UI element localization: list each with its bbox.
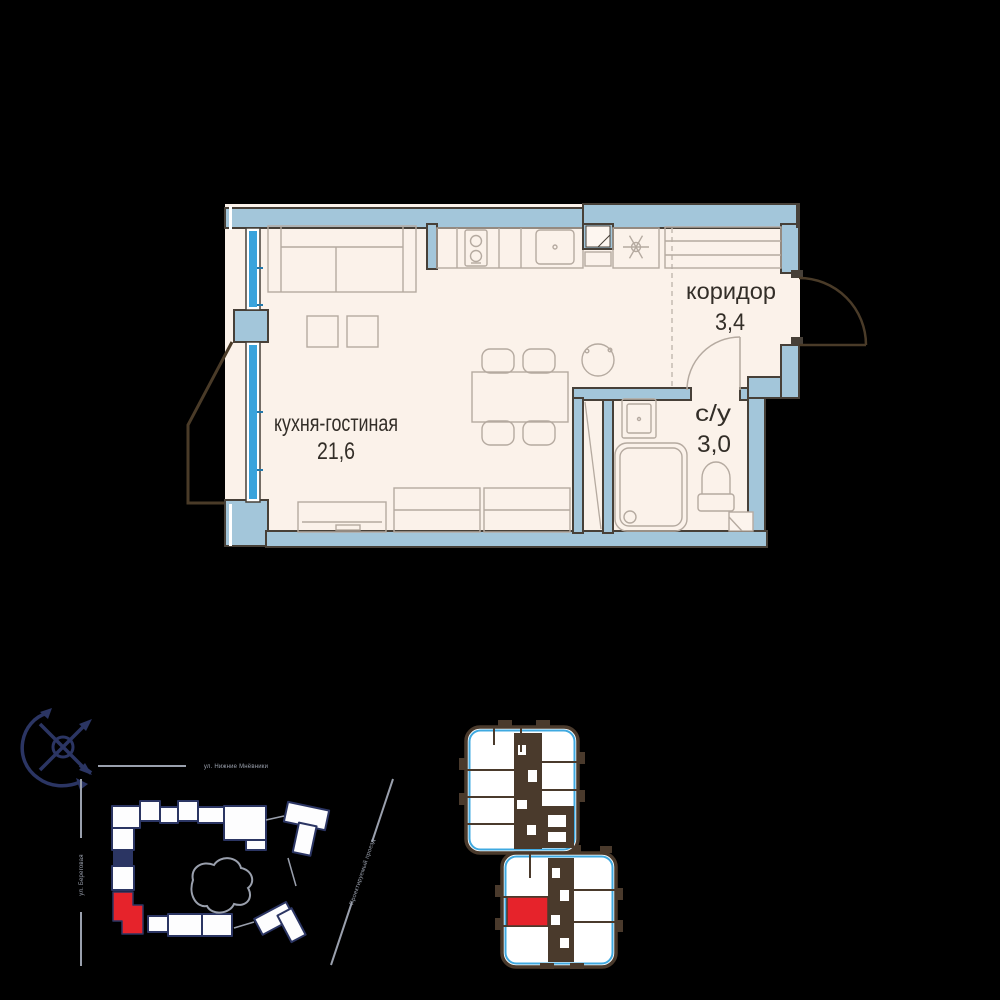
room-area-corridor: 3,4 bbox=[715, 309, 745, 336]
site-plan: ул. Нижние Мнёвники ул. Береговая Проект… bbox=[22, 708, 393, 966]
room-label-corridor: коридор bbox=[686, 278, 776, 304]
compass-icon bbox=[22, 708, 92, 790]
highlighted-building[interactable] bbox=[113, 892, 143, 934]
room-label-kitchen-living: кухня-гостиная bbox=[274, 410, 398, 436]
street-label-right: Проектируемый проезд bbox=[348, 838, 377, 906]
room-area-bathroom: 3,0 bbox=[697, 431, 731, 458]
site-buildings bbox=[112, 801, 329, 952]
room-label-bathroom: с/у bbox=[695, 400, 732, 426]
highlighted-unit[interactable] bbox=[507, 897, 548, 926]
apartment-plan-page: кухня-гостиная 21,6 коридор 3,4 с/у 3,0 bbox=[0, 0, 1000, 1000]
plan-drawing: кухня-гостиная 21,6 коридор 3,4 с/у 3,0 bbox=[0, 0, 1000, 1000]
key-plan bbox=[459, 720, 623, 969]
entrance-door bbox=[799, 278, 866, 345]
entrance-door-arc bbox=[799, 278, 866, 345]
site-building-dark bbox=[114, 850, 132, 866]
key-plan-lower-section bbox=[495, 846, 623, 969]
window-glass bbox=[249, 345, 257, 499]
street-label-top: ул. Нижние Мнёвники bbox=[204, 764, 268, 770]
street-label-left: ул. Береговая bbox=[79, 854, 85, 895]
key-plan-upper-section bbox=[459, 720, 585, 853]
window-band bbox=[246, 228, 263, 502]
window-glass bbox=[249, 231, 257, 307]
access-hatch bbox=[729, 512, 753, 531]
floor-plan: кухня-гостиная 21,6 коридор 3,4 с/у 3,0 bbox=[188, 204, 866, 547]
courtyard-outline bbox=[191, 858, 252, 912]
room-area-kitchen-living: 21,6 bbox=[317, 438, 355, 465]
